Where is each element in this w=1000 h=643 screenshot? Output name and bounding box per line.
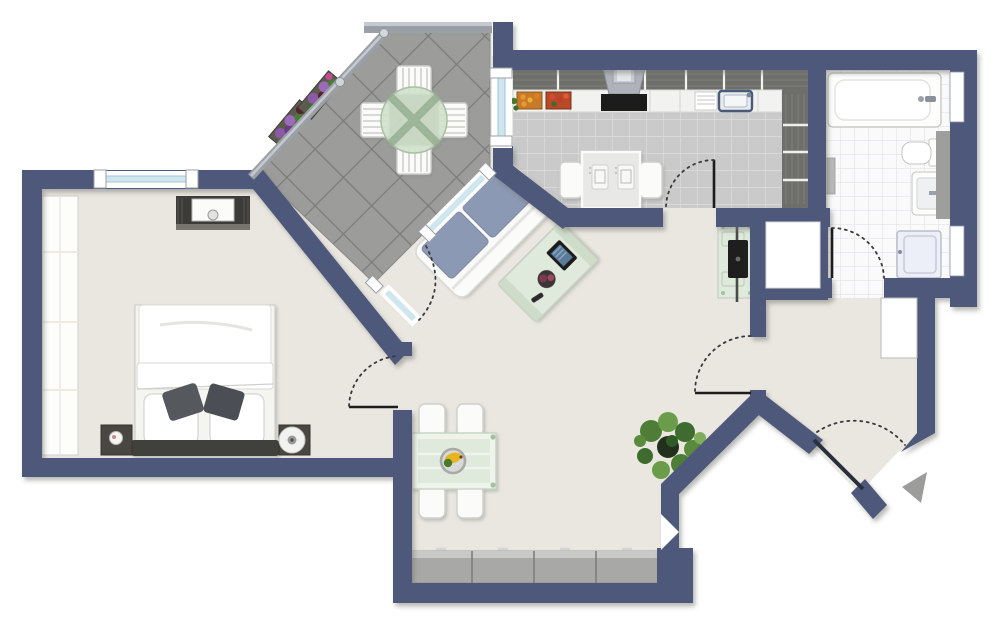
- bedroom-window: [94, 170, 198, 188]
- dresser: [176, 196, 250, 230]
- floor-plan: [0, 0, 1000, 643]
- dining-chair: [419, 404, 445, 436]
- dining-chair: [419, 486, 445, 518]
- kitchen-sink: [719, 91, 752, 111]
- nightstand-left: [101, 425, 132, 455]
- entry-arrow: [902, 472, 927, 503]
- kitchen-chair-right: [640, 162, 662, 198]
- headboard: [131, 440, 279, 456]
- washing-machine: [897, 231, 941, 278]
- cooktop: [601, 94, 647, 111]
- produce-crates: [511, 92, 571, 111]
- dining-chair: [457, 404, 483, 436]
- kitchen-terrace-window: [490, 68, 512, 148]
- bathtub: [828, 73, 941, 127]
- nightstand-right: [279, 425, 310, 455]
- tv-panel: [718, 218, 755, 302]
- wall-niche: [950, 72, 964, 122]
- stove-hood: [603, 68, 645, 94]
- bed: [131, 305, 279, 456]
- wardrobe: [42, 196, 78, 455]
- dining-chair: [457, 486, 483, 518]
- floor-plan-page: [0, 0, 1000, 643]
- sideboard: [410, 549, 658, 583]
- hall-niche: [881, 298, 917, 358]
- banana-bowl: [441, 449, 465, 473]
- kitchen-chair-left: [560, 162, 582, 198]
- wall-niche: [950, 226, 964, 276]
- dish-rack: [695, 92, 717, 110]
- terrace-round-table: [381, 87, 447, 153]
- closet-niche: [766, 222, 820, 288]
- bathroom-radiator: [827, 158, 835, 194]
